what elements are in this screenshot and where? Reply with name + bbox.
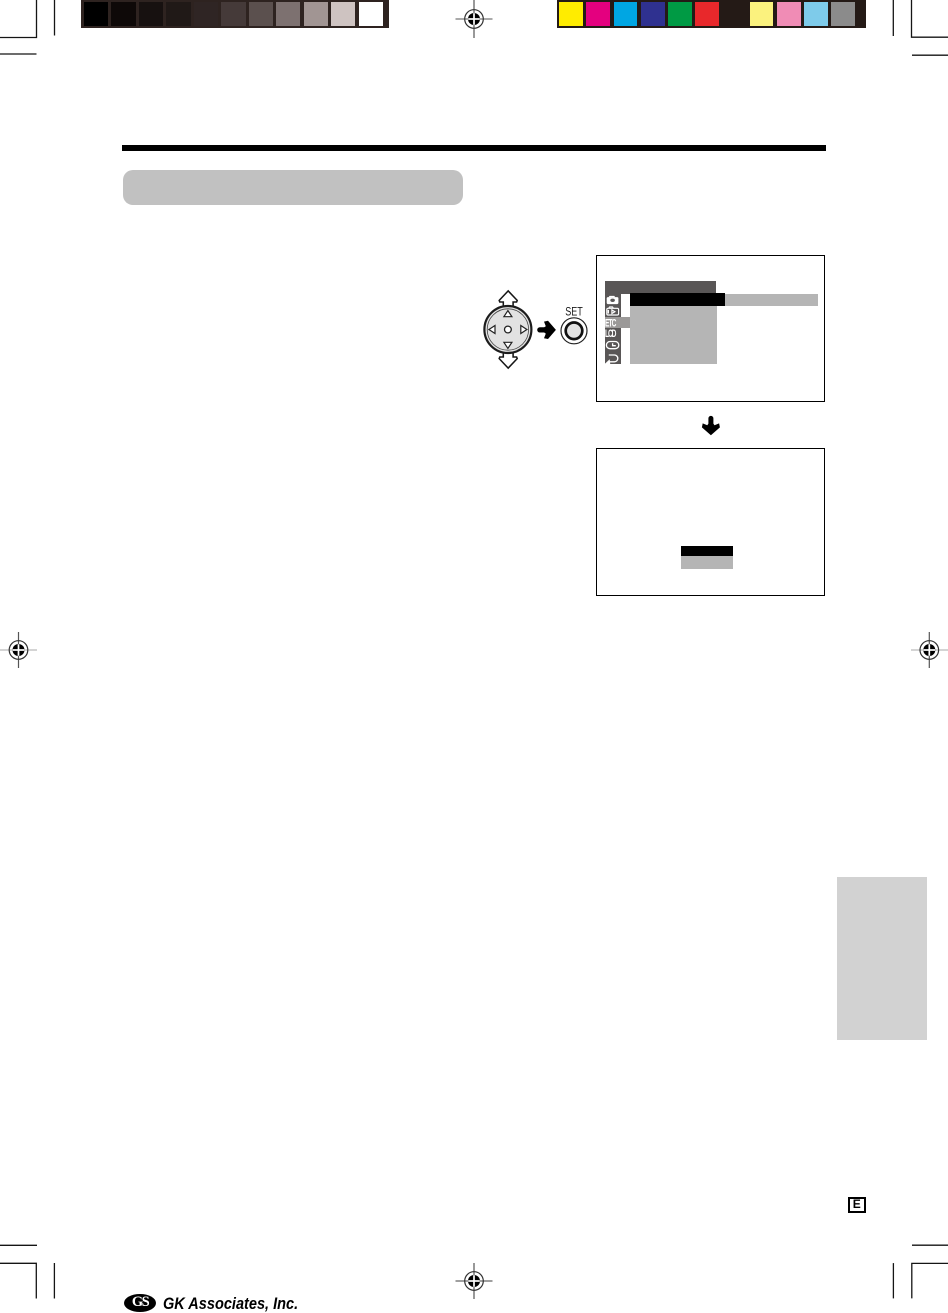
svg-text:SET: SET bbox=[565, 306, 583, 318]
svg-text:LCD: LCD bbox=[605, 327, 617, 339]
